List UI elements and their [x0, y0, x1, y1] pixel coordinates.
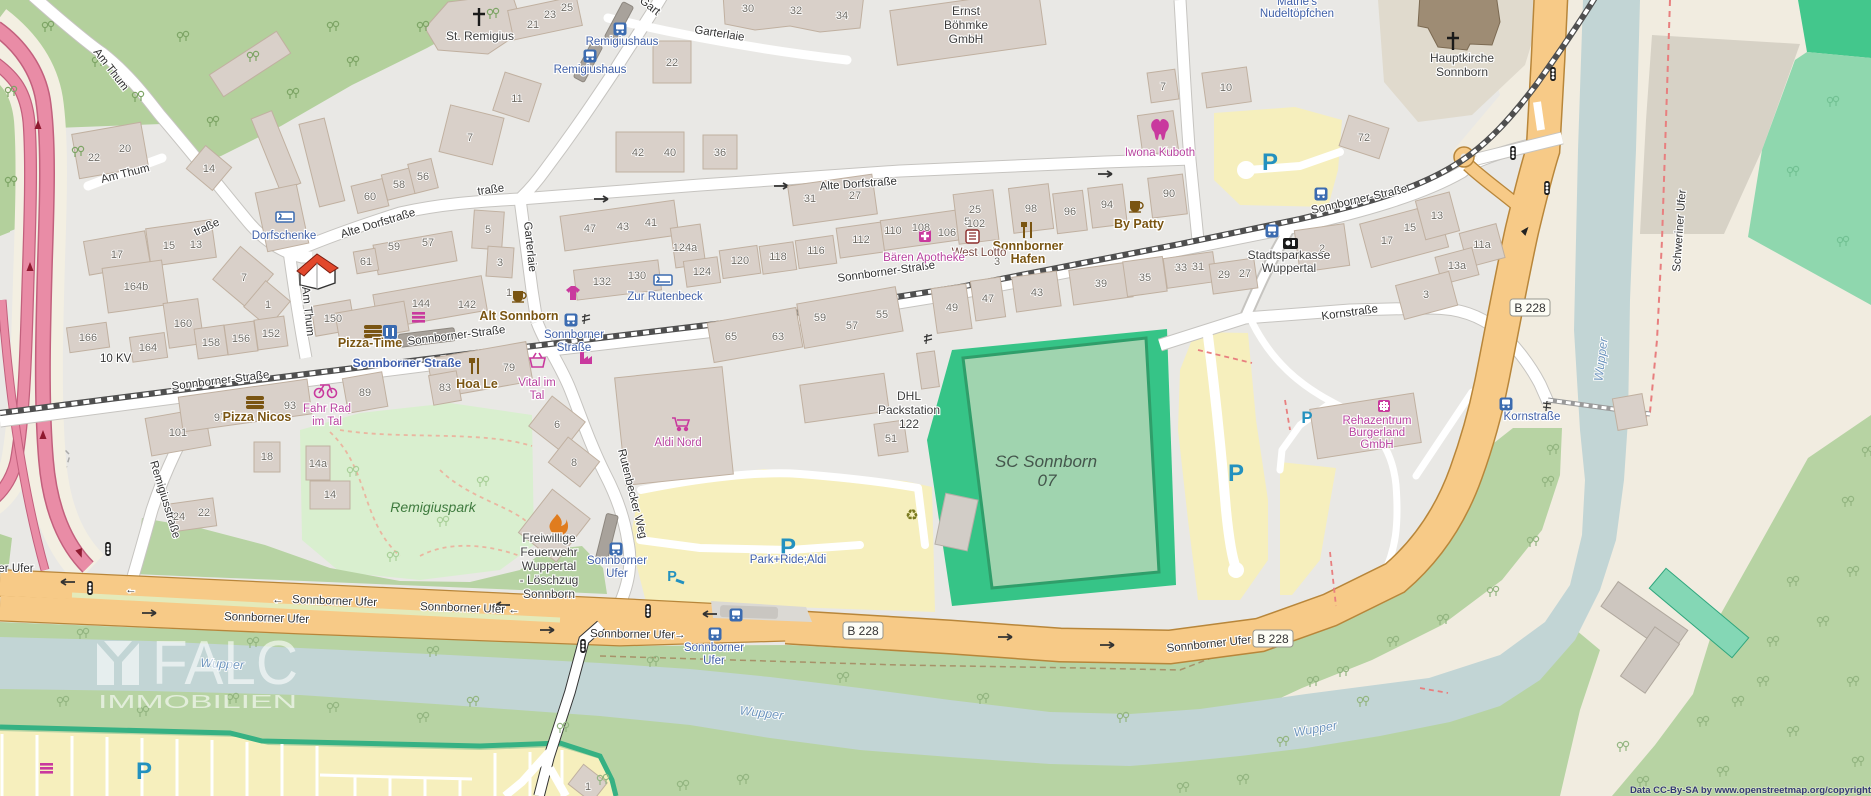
svg-text:124: 124: [693, 266, 711, 278]
svg-text:7: 7: [467, 132, 473, 144]
svg-text:79: 79: [503, 362, 515, 374]
svg-text:14a: 14a: [309, 458, 328, 470]
svg-text:Sonnborner: Sonnborner: [684, 642, 744, 654]
svg-text:Hauptkirche: Hauptkirche: [1430, 51, 1494, 65]
svg-text:15: 15: [163, 240, 175, 252]
svg-text:102: 102: [967, 218, 985, 230]
svg-text:96: 96: [1064, 206, 1076, 218]
svg-text:6: 6: [554, 419, 560, 431]
svg-text:3: 3: [1423, 289, 1429, 301]
svg-text:B 228: B 228: [1257, 632, 1289, 646]
svg-text:5: 5: [485, 224, 491, 236]
svg-text:20: 20: [119, 143, 131, 155]
svg-text:57: 57: [422, 237, 434, 249]
svg-text:Dorfschenke: Dorfschenke: [252, 230, 317, 242]
svg-text:Wuppertal: Wuppertal: [522, 559, 576, 573]
svg-text:Bären Apotheke: Bären Apotheke: [883, 252, 965, 264]
svg-text:Park+Ride;Aldi: Park+Ride;Aldi: [750, 554, 826, 566]
svg-text:Sonnborn: Sonnborn: [523, 587, 575, 601]
svg-text:42: 42: [632, 147, 644, 159]
svg-text:Data CC-By-SA by www.openstree: Data CC-By-SA by www.openstreetmap.org/c…: [1630, 785, 1871, 796]
svg-text:SC Sonnborn: SC Sonnborn: [995, 452, 1097, 471]
svg-text:43: 43: [1031, 287, 1043, 299]
svg-text:57: 57: [846, 320, 858, 332]
svg-text:Remigiushaus: Remigiushaus: [554, 64, 627, 76]
svg-text:47: 47: [584, 223, 596, 235]
svg-text:Tal: Tal: [530, 390, 545, 402]
svg-text:130: 130: [628, 270, 646, 282]
svg-text:Vital im: Vital im: [518, 377, 556, 389]
svg-text:Sonnborner Ufer: Sonnborner Ufer: [590, 628, 675, 641]
svg-text:1: 1: [506, 287, 512, 299]
svg-text:22: 22: [88, 152, 100, 164]
svg-text:55: 55: [876, 309, 888, 321]
svg-text:FALC: FALC: [152, 629, 298, 698]
svg-text:13: 13: [190, 239, 202, 251]
svg-text:25: 25: [969, 204, 981, 216]
svg-text:Stadtsparkasse: Stadtsparkasse: [1248, 248, 1331, 262]
svg-text:90: 90: [1163, 188, 1175, 200]
svg-text:18: 18: [261, 451, 273, 463]
svg-text:106: 106: [938, 227, 956, 239]
svg-text:24: 24: [173, 511, 185, 523]
svg-text:40: 40: [664, 147, 676, 159]
svg-text:120: 120: [731, 255, 749, 267]
svg-text:63: 63: [772, 331, 784, 343]
svg-text:11a: 11a: [1473, 239, 1491, 251]
svg-text:30: 30: [742, 3, 754, 15]
svg-text:89: 89: [359, 387, 371, 399]
svg-text:110: 110: [884, 225, 902, 237]
svg-text:14: 14: [324, 489, 336, 501]
svg-text:31: 31: [1192, 261, 1204, 273]
svg-text:35: 35: [1139, 272, 1151, 284]
svg-text:60: 60: [364, 191, 376, 203]
svg-text:49: 49: [946, 302, 958, 314]
svg-text:116: 116: [807, 245, 825, 257]
svg-text:144: 144: [412, 298, 430, 310]
svg-text:7: 7: [241, 272, 247, 284]
svg-text:GmbH: GmbH: [949, 32, 984, 46]
svg-text:Freiwillige: Freiwillige: [522, 531, 576, 545]
svg-text:15: 15: [1404, 222, 1416, 234]
svg-text:Sonnborner: Sonnborner: [587, 555, 647, 567]
svg-text:98: 98: [1025, 203, 1037, 215]
svg-text:Packstation: Packstation: [878, 403, 940, 417]
svg-text:Fahr Rad: Fahr Rad: [303, 403, 351, 415]
svg-text:83: 83: [439, 382, 451, 394]
svg-text:→: →: [674, 629, 686, 641]
svg-text:Ernst: Ernst: [952, 4, 981, 18]
svg-text:Rehazentrum: Rehazentrum: [1342, 415, 1411, 427]
svg-text:29: 29: [1218, 269, 1230, 281]
svg-text:132: 132: [593, 276, 611, 288]
svg-text:Mathe's: Mathe's: [1277, 0, 1317, 8]
svg-text:Hoa Le: Hoa Le: [456, 377, 498, 391]
svg-text:Ufer: Ufer: [606, 568, 628, 580]
svg-text:11: 11: [511, 93, 522, 105]
svg-text:51: 51: [885, 433, 897, 445]
svg-text:Nudeltöpfchen: Nudeltöpfchen: [1260, 8, 1334, 20]
svg-text:25: 25: [561, 2, 573, 14]
svg-text:Böhmke: Böhmke: [944, 18, 988, 32]
svg-text:166: 166: [79, 332, 97, 344]
svg-text:118: 118: [769, 251, 787, 263]
svg-text:Burgerland: Burgerland: [1349, 427, 1405, 439]
svg-text:47: 47: [982, 293, 994, 305]
svg-text:142: 142: [458, 299, 476, 311]
svg-text:65: 65: [725, 331, 737, 343]
svg-text:164: 164: [139, 342, 157, 354]
svg-text:32: 32: [790, 5, 802, 17]
svg-text:Pizza Nicos: Pizza Nicos: [223, 410, 292, 424]
svg-text:101: 101: [169, 427, 187, 439]
svg-text:St. Remigius: St. Remigius: [446, 29, 514, 43]
svg-text:Remigiuspark: Remigiuspark: [390, 499, 477, 515]
svg-text:By Patty: By Patty: [1114, 217, 1164, 231]
svg-text:Ufer: Ufer: [703, 655, 725, 667]
svg-text:GmbH: GmbH: [1360, 439, 1393, 451]
svg-text:59: 59: [814, 312, 826, 324]
svg-text:160: 160: [174, 318, 192, 330]
svg-text:8: 8: [571, 457, 577, 469]
svg-text:152: 152: [262, 328, 280, 340]
svg-text:1: 1: [265, 299, 271, 311]
svg-text:Sonnborner: Sonnborner: [544, 329, 604, 341]
svg-text:13: 13: [1431, 210, 1443, 222]
svg-text:164b: 164b: [124, 281, 148, 293]
svg-text:22: 22: [666, 57, 678, 69]
svg-text:150: 150: [324, 313, 342, 325]
svg-text:22: 22: [198, 507, 210, 519]
svg-text:Hafen: Hafen: [1011, 252, 1046, 266]
svg-text:72: 72: [1358, 132, 1370, 144]
svg-text:1: 1: [585, 781, 591, 793]
svg-text:B 228: B 228: [847, 624, 879, 638]
svg-text:Feuerwehr: Feuerwehr: [520, 545, 577, 559]
svg-text:27: 27: [1239, 268, 1251, 280]
svg-text:34: 34: [836, 10, 848, 22]
svg-text:10 KV: 10 KV: [100, 353, 132, 365]
svg-text:Kornstraße: Kornstraße: [1504, 411, 1561, 423]
svg-text:Aldi Nord: Aldi Nord: [654, 437, 701, 449]
svg-text:124a: 124a: [673, 242, 698, 254]
svg-text:58: 58: [393, 179, 405, 191]
svg-text:Sonnborner Straße: Sonnborner Straße: [353, 356, 462, 370]
svg-text:156: 156: [232, 333, 250, 345]
svg-text:DHL: DHL: [897, 389, 921, 403]
svg-text:♻: ♻: [905, 507, 918, 524]
svg-text:Sonnborn: Sonnborn: [1436, 65, 1488, 79]
svg-text:im Tal: im Tal: [312, 416, 342, 428]
svg-text:Alt Sonnborn: Alt Sonnborn: [479, 309, 558, 323]
svg-text:07: 07: [1038, 471, 1057, 490]
svg-text:108: 108: [912, 222, 930, 234]
svg-text:27: 27: [849, 190, 861, 202]
svg-text:23: 23: [544, 9, 556, 21]
svg-text:- Löschzug: - Löschzug: [520, 573, 579, 587]
svg-text:41: 41: [645, 217, 657, 229]
svg-text:17: 17: [111, 249, 123, 261]
svg-text:10: 10: [1220, 82, 1232, 94]
svg-text:158: 158: [202, 337, 220, 349]
svg-text:112: 112: [852, 234, 870, 246]
svg-text:Straße: Straße: [557, 342, 592, 354]
svg-text:Pizza-Time: Pizza-Time: [338, 336, 402, 350]
svg-text:Remigiushaus: Remigiushaus: [586, 36, 659, 48]
svg-text:43: 43: [617, 221, 629, 233]
svg-text:Wuppertal: Wuppertal: [1262, 261, 1316, 275]
svg-text:Zur Rutenbeck: Zur Rutenbeck: [627, 291, 703, 303]
svg-text:←: ←: [125, 584, 137, 596]
svg-text:7: 7: [1160, 81, 1166, 93]
svg-text:61: 61: [360, 256, 372, 268]
svg-text:33: 33: [1175, 262, 1187, 274]
svg-text:B 228: B 228: [1514, 301, 1546, 315]
svg-text:36: 36: [714, 147, 726, 159]
svg-text:56: 56: [417, 171, 429, 183]
svg-text:13a: 13a: [1448, 260, 1467, 272]
svg-text:31: 31: [804, 193, 816, 205]
svg-text:Iwona Kuboth: Iwona Kuboth: [1125, 147, 1195, 159]
svg-text:122: 122: [899, 417, 919, 431]
svg-text:3: 3: [497, 257, 503, 269]
svg-text:94: 94: [1101, 199, 1113, 211]
svg-text:14: 14: [203, 163, 215, 175]
svg-text:IMMOBILIEN: IMMOBILIEN: [98, 692, 297, 712]
svg-text:ner Ufer: ner Ufer: [0, 563, 34, 575]
svg-text:17: 17: [1381, 235, 1393, 247]
svg-text:←: ←: [272, 594, 284, 606]
svg-text:59: 59: [388, 241, 400, 253]
svg-text:39: 39: [1095, 278, 1107, 290]
svg-text:21: 21: [527, 19, 539, 31]
